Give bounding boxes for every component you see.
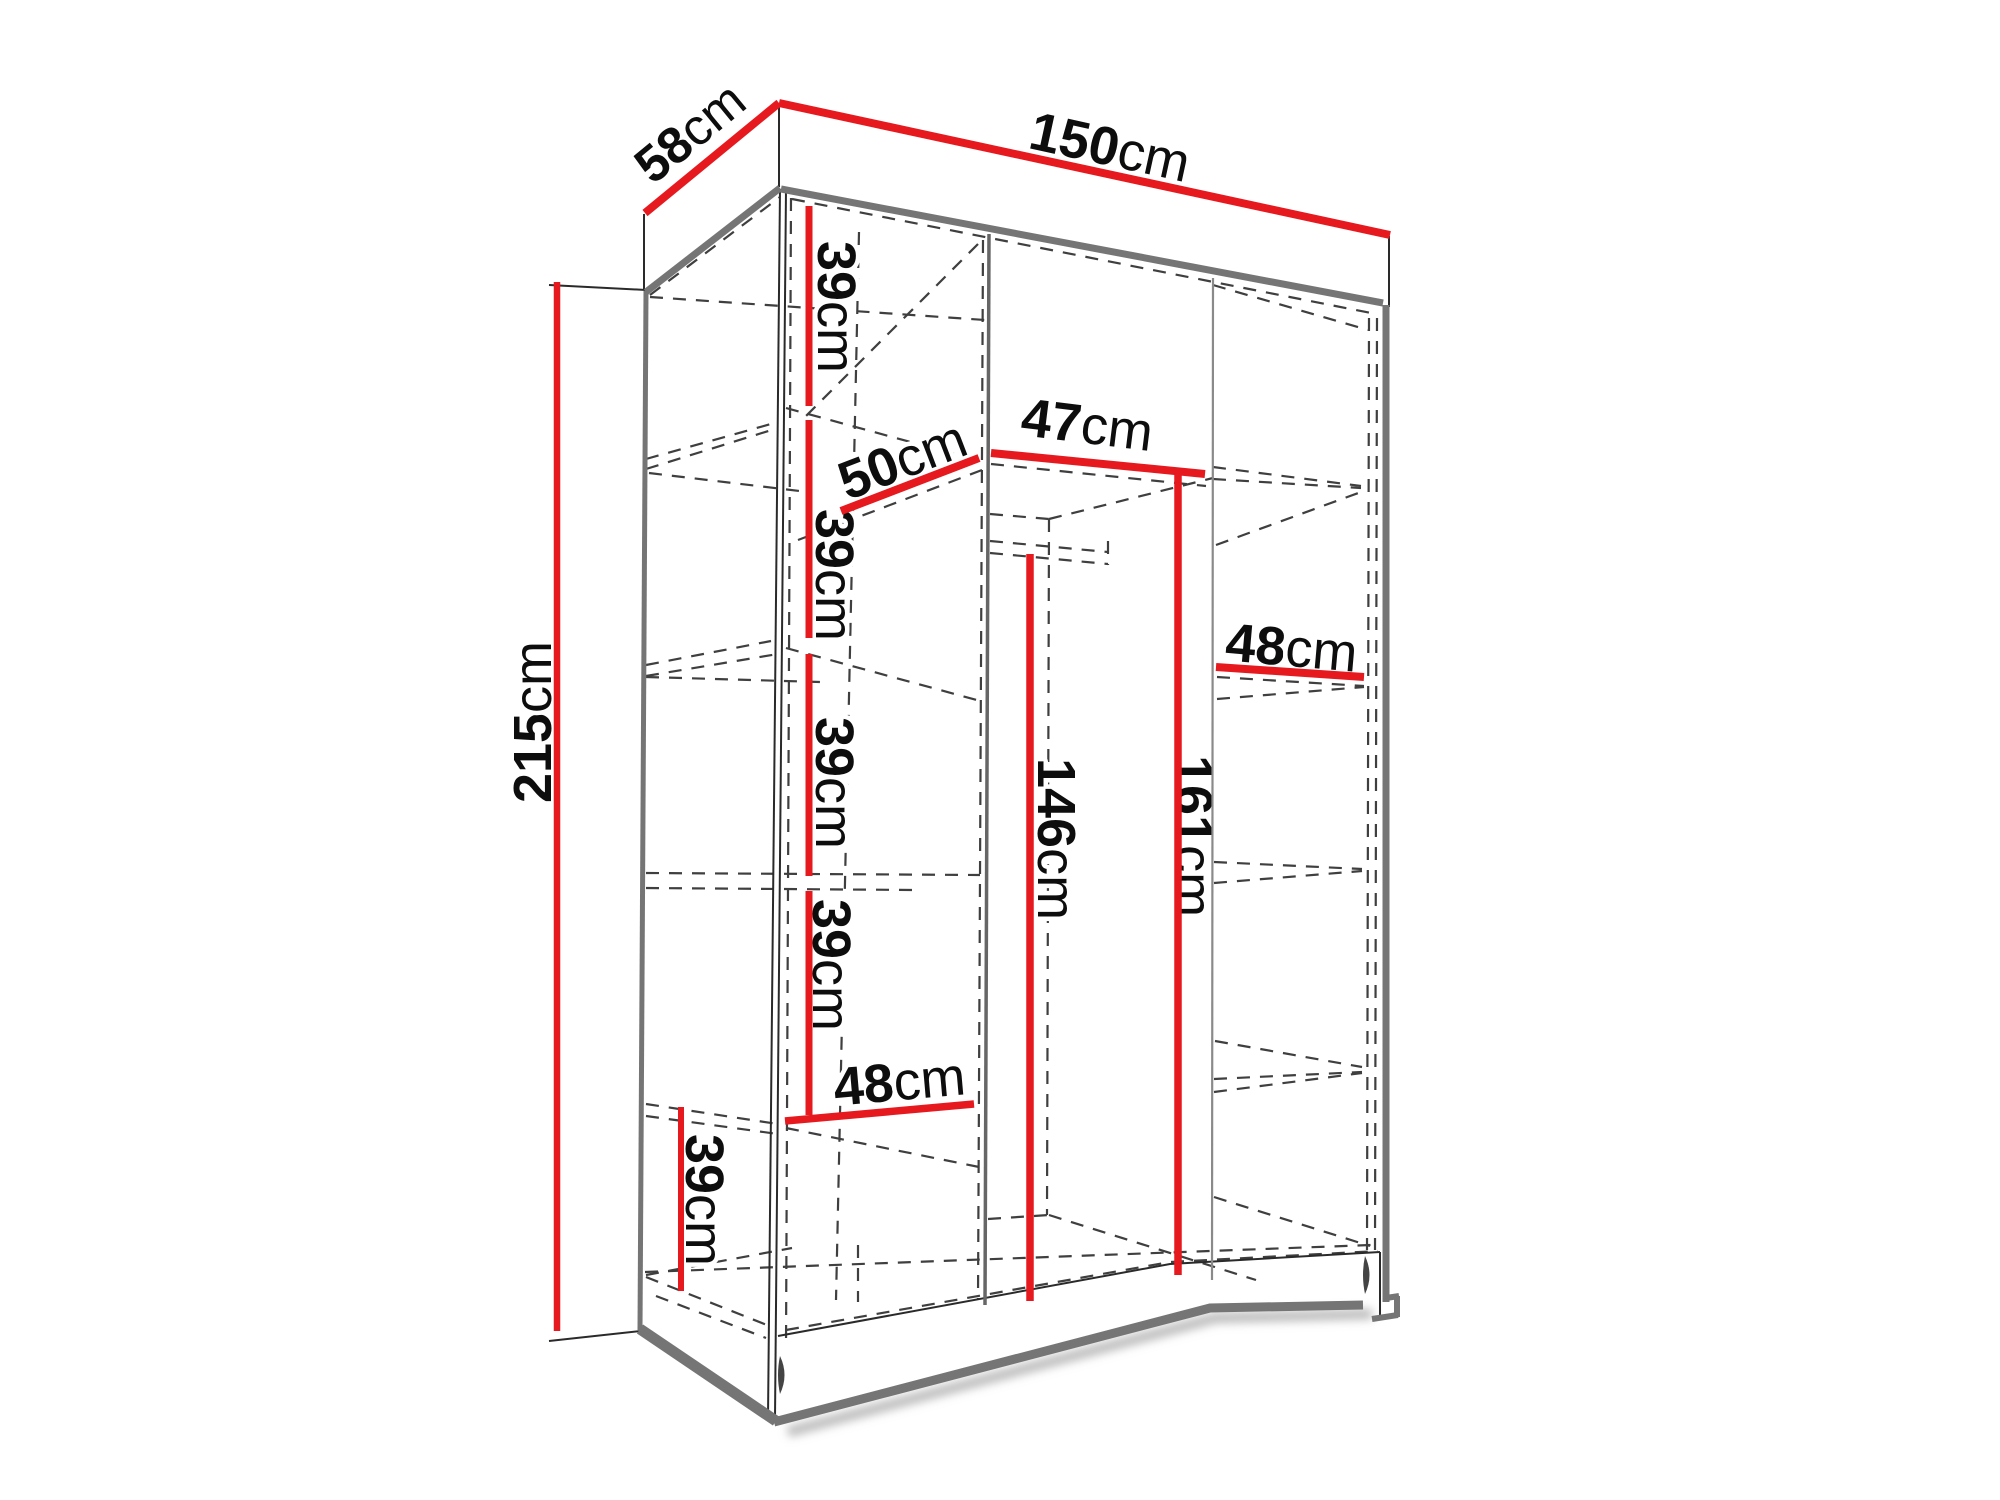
svg-text:39cm: 39cm (806, 241, 866, 373)
svg-text:39cm: 39cm (804, 717, 864, 849)
svg-text:146cm: 146cm (1026, 758, 1086, 920)
svg-text:39cm: 39cm (804, 509, 864, 641)
svg-text:161cm: 161cm (1163, 755, 1223, 917)
